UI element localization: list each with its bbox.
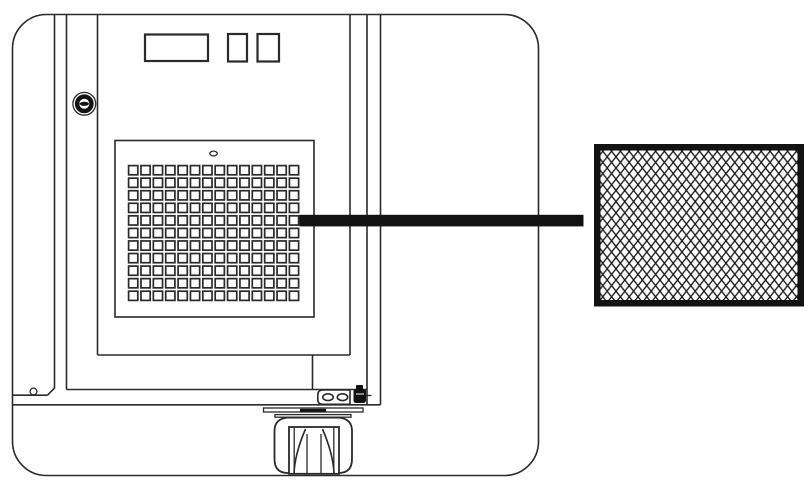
grille-hole [190, 254, 199, 263]
grille-hole [215, 178, 224, 187]
grille-hole [252, 203, 261, 212]
panel-button-2 [258, 34, 280, 62]
grille-hole [129, 254, 138, 263]
grille-hole [141, 216, 150, 225]
bracket-hole-right [337, 394, 347, 401]
grille-hole [203, 228, 212, 237]
grille-hole [215, 216, 224, 225]
grille-hole [277, 241, 286, 250]
grille-hole [240, 241, 249, 250]
grille-hole [190, 203, 199, 212]
grille-hole [215, 279, 224, 288]
grille-hole [240, 203, 249, 212]
lock-keyslot [80, 102, 89, 106]
grille-hole [141, 266, 150, 275]
grille-hole [178, 191, 187, 200]
grille-hole [240, 254, 249, 263]
vent-grille-holes [129, 166, 299, 301]
drain-valve [354, 389, 367, 403]
grille-hole [240, 166, 249, 175]
grille-hole [240, 178, 249, 187]
grille-hole [153, 241, 162, 250]
grille-hole [190, 291, 199, 300]
grille-hole [252, 216, 261, 225]
grille-hole [129, 191, 138, 200]
grille-hole [252, 254, 261, 263]
grille-hole [265, 266, 274, 275]
grille-hole [190, 241, 199, 250]
grille-hole [265, 241, 274, 250]
grille-hole [190, 166, 199, 175]
grille-hole [166, 203, 175, 212]
grille-hole [166, 266, 175, 275]
grille-hole [166, 241, 175, 250]
grille-hole [203, 254, 212, 263]
callout-line [300, 215, 584, 227]
grille-hole [277, 178, 286, 187]
machine-outline [13, 15, 539, 476]
vent-panel [115, 141, 314, 318]
caster-assembly [264, 385, 372, 474]
grille-hole [153, 266, 162, 275]
grille-hole [153, 191, 162, 200]
grille-hole [153, 216, 162, 225]
grille-hole [215, 228, 224, 237]
grille-hole [166, 166, 175, 175]
grille-hole [228, 291, 237, 300]
grille-hole [129, 266, 138, 275]
grille-hole [203, 266, 212, 275]
grille-hole [166, 178, 175, 187]
grille-hole [228, 178, 237, 187]
grille-hole [240, 191, 249, 200]
grille-hole [277, 279, 286, 288]
grille-hole [265, 216, 274, 225]
grille-hole [215, 291, 224, 300]
diagram-canvas [0, 0, 812, 486]
grille-hole [178, 241, 187, 250]
grille-hole [277, 228, 286, 237]
grille-hole [265, 254, 274, 263]
grille-hole [289, 266, 298, 275]
grille-hole [252, 191, 261, 200]
mesh-filter-screen [601, 151, 798, 301]
machine-body [13, 15, 539, 476]
left-seam-outer [48, 15, 55, 396]
grille-hole [203, 166, 212, 175]
grille-hole [190, 178, 199, 187]
door-lock [73, 92, 96, 115]
grille-hole [190, 228, 199, 237]
grille-hole [228, 216, 237, 225]
grille-hole [289, 166, 298, 175]
grille-hole [228, 166, 237, 175]
bracket-hole-left [323, 394, 333, 401]
grille-hole [141, 291, 150, 300]
grille-hole [252, 178, 261, 187]
grille-hole [190, 279, 199, 288]
grille-hole [265, 291, 274, 300]
grille-hole [203, 178, 212, 187]
grille-hole [289, 203, 298, 212]
grille-hole [129, 178, 138, 187]
grille-hole [166, 291, 175, 300]
filter-location-diagram [0, 0, 812, 486]
grille-hole [240, 279, 249, 288]
grille-hole [178, 216, 187, 225]
grille-hole [153, 291, 162, 300]
grille-hole [265, 191, 274, 200]
grille-hole [289, 228, 298, 237]
grille-hole [190, 216, 199, 225]
grille-hole [277, 191, 286, 200]
grille-hole [215, 266, 224, 275]
grille-hole [265, 203, 274, 212]
grille-hole [215, 254, 224, 263]
grille-hole [277, 291, 286, 300]
grille-hole [129, 216, 138, 225]
grille-hole [178, 291, 187, 300]
grille-hole [178, 166, 187, 175]
grille-hole [228, 279, 237, 288]
grille-hole [215, 166, 224, 175]
grille-hole [129, 279, 138, 288]
grille-hole [277, 254, 286, 263]
grille-hole [166, 228, 175, 237]
grille-hole [240, 216, 249, 225]
grille-hole [240, 291, 249, 300]
grille-hole [141, 279, 150, 288]
grille-hole [228, 228, 237, 237]
caster-plate-shadow [300, 409, 326, 412]
grille-hole [141, 241, 150, 250]
grille-hole [265, 166, 274, 175]
grille-hole [203, 216, 212, 225]
grille-hole [190, 191, 199, 200]
drain-valve-cap [356, 385, 363, 390]
grille-hole [166, 216, 175, 225]
grille-hole [265, 178, 274, 187]
vent-panel-screw-slot [210, 151, 217, 156]
grille-hole [166, 254, 175, 263]
grille-hole [289, 241, 298, 250]
grille-hole [228, 191, 237, 200]
control-panel [145, 34, 279, 62]
grille-hole [252, 279, 261, 288]
grille-hole [252, 166, 261, 175]
grille-hole [203, 191, 212, 200]
grille-hole [277, 166, 286, 175]
grille-hole [178, 203, 187, 212]
grille-hole [277, 216, 286, 225]
grille-hole [240, 266, 249, 275]
grille-hole [240, 228, 249, 237]
grille-hole [277, 203, 286, 212]
grille-hole [178, 254, 187, 263]
grille-hole [228, 203, 237, 212]
grille-hole [166, 191, 175, 200]
grille-hole [252, 291, 261, 300]
grille-hole [190, 266, 199, 275]
grille-hole [265, 279, 274, 288]
grille-hole [228, 266, 237, 275]
grille-hole [215, 191, 224, 200]
grille-hole [265, 228, 274, 237]
grille-hole [141, 166, 150, 175]
grille-hole [129, 166, 138, 175]
grille-hole [178, 178, 187, 187]
hinge-pin [30, 388, 37, 395]
grille-hole [141, 228, 150, 237]
grille-hole [153, 254, 162, 263]
grille-hole [228, 241, 237, 250]
grille-hole [153, 203, 162, 212]
grille-hole [141, 254, 150, 263]
grille-hole [141, 178, 150, 187]
grille-hole [289, 191, 298, 200]
grille-hole [129, 203, 138, 212]
grille-hole [166, 279, 175, 288]
grille-hole [277, 266, 286, 275]
grille-hole [178, 279, 187, 288]
grille-hole [129, 228, 138, 237]
grille-hole [153, 166, 162, 175]
grille-hole [153, 178, 162, 187]
grille-hole [203, 291, 212, 300]
grille-hole [129, 291, 138, 300]
grille-hole [178, 228, 187, 237]
grille-hole [203, 279, 212, 288]
grille-hole [215, 203, 224, 212]
grille-hole [289, 216, 298, 225]
grille-hole [215, 241, 224, 250]
grille-hole [153, 279, 162, 288]
grille-hole [141, 191, 150, 200]
grille-hole [289, 279, 298, 288]
grille-hole [289, 291, 298, 300]
grille-hole [153, 228, 162, 237]
grille-hole [178, 266, 187, 275]
display-window [145, 35, 208, 62]
panel-button-1 [228, 34, 247, 62]
grille-hole [203, 203, 212, 212]
mesh-filter [594, 144, 804, 307]
grille-hole [252, 266, 261, 275]
grille-hole [289, 254, 298, 263]
grille-hole [252, 241, 261, 250]
grille-hole [252, 228, 261, 237]
grille-hole [129, 241, 138, 250]
grille-hole [141, 203, 150, 212]
grille-hole [203, 241, 212, 250]
grille-hole [289, 178, 298, 187]
grille-hole [228, 254, 237, 263]
caster-fork-opening [289, 427, 339, 474]
